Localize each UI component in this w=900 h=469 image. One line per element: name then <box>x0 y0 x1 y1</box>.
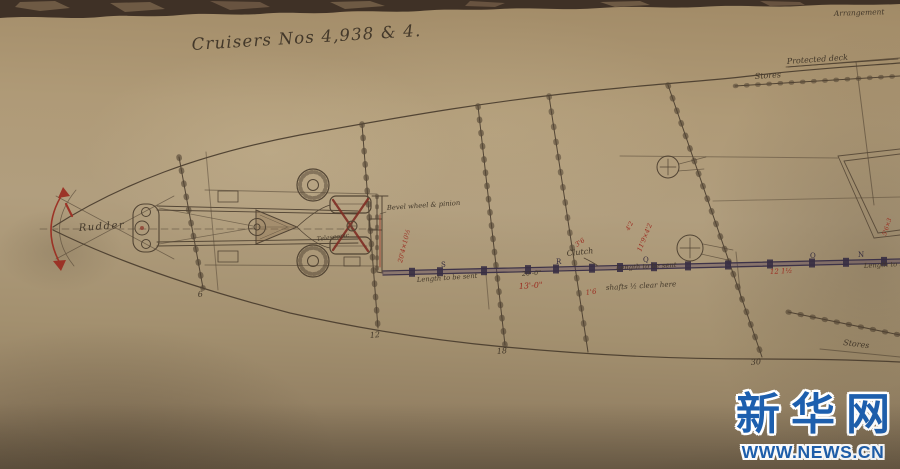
photo-of-ship-blueprint: Cruisers Nos 4,938 & 4. Arrangement Prot… <box>0 0 900 469</box>
upper-hull-line <box>53 63 900 227</box>
shaft-letter-n: N <box>858 251 864 259</box>
arrangement-note: Arrangement <box>833 7 886 18</box>
red-note-hatch: 5'6×3 <box>881 217 893 237</box>
steering-gear-mechanism <box>133 169 388 277</box>
station-12: 12 <box>369 330 380 340</box>
detail-circle-lower <box>677 235 733 261</box>
stores-lower-label: Stores <box>843 338 870 350</box>
clutch-label: Clutch <box>566 246 593 258</box>
drawing-title: Cruisers Nos 4,938 & 4. <box>191 21 422 54</box>
stores-upper-label: Stores <box>755 70 782 81</box>
red-note-clutch-2: 4'2 <box>624 220 635 233</box>
protected-deck-label: Protected deck <box>786 53 849 66</box>
bevel-wheel-label: Bevel wheel & pinion <box>386 199 461 212</box>
dim-black-20-0: 20'-0" <box>521 269 542 278</box>
bottom-right-deck-line <box>788 312 900 357</box>
xinhua-url-text: WWW.NEWS.CN <box>736 444 890 462</box>
dim-red-1-6: 1'6 <box>585 287 597 297</box>
xinhua-logo-text: 新华网 <box>736 393 900 437</box>
station-6: 6 <box>197 290 203 299</box>
station-18: 18 <box>496 346 507 356</box>
shaft-letter-r: R <box>556 258 562 266</box>
xinhua-watermark: 新华网 WWW.NEWS.CN <box>736 393 890 462</box>
station-30: 30 <box>750 357 761 367</box>
red-note-clutch: 11'9×4'2 <box>635 222 654 253</box>
red-note-wall: 20'4×10½ <box>396 228 412 264</box>
lower-hull-line <box>53 230 900 362</box>
shaft-letter-s: S <box>441 261 446 269</box>
dim-red-13-0: 13'-0" <box>519 280 543 291</box>
shaft-letter-o: O <box>810 252 816 260</box>
shaft-letter-q: Q <box>643 256 649 264</box>
torn-paper-edge <box>0 0 900 18</box>
telescopic-label: Telescopic <box>316 232 350 243</box>
dim-red-12-1h: 12 1½ <box>770 267 793 276</box>
rudder-label: Rudder <box>77 220 125 234</box>
shafts-clear-note: shafts ½ clear here <box>606 279 677 292</box>
